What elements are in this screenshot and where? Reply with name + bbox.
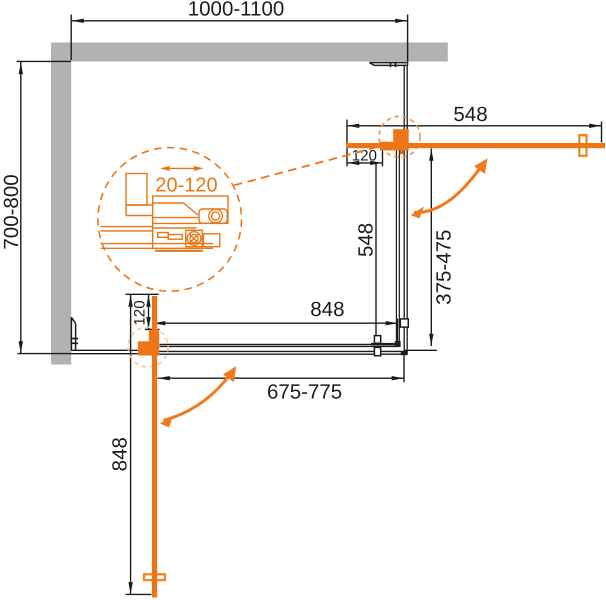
svg-text:1000-1100: 1000-1100: [188, 0, 285, 21]
svg-text:20-120: 20-120: [155, 175, 217, 197]
svg-text:848: 848: [310, 298, 344, 321]
svg-text:375-475: 375-475: [433, 230, 456, 305]
svg-text:848: 848: [109, 437, 132, 471]
svg-text:120: 120: [352, 148, 377, 165]
svg-text:548: 548: [453, 103, 487, 126]
svg-text:700-800: 700-800: [0, 174, 23, 249]
svg-text:120: 120: [132, 300, 149, 325]
svg-text:548: 548: [354, 223, 377, 257]
svg-text:675-775: 675-775: [267, 380, 342, 403]
